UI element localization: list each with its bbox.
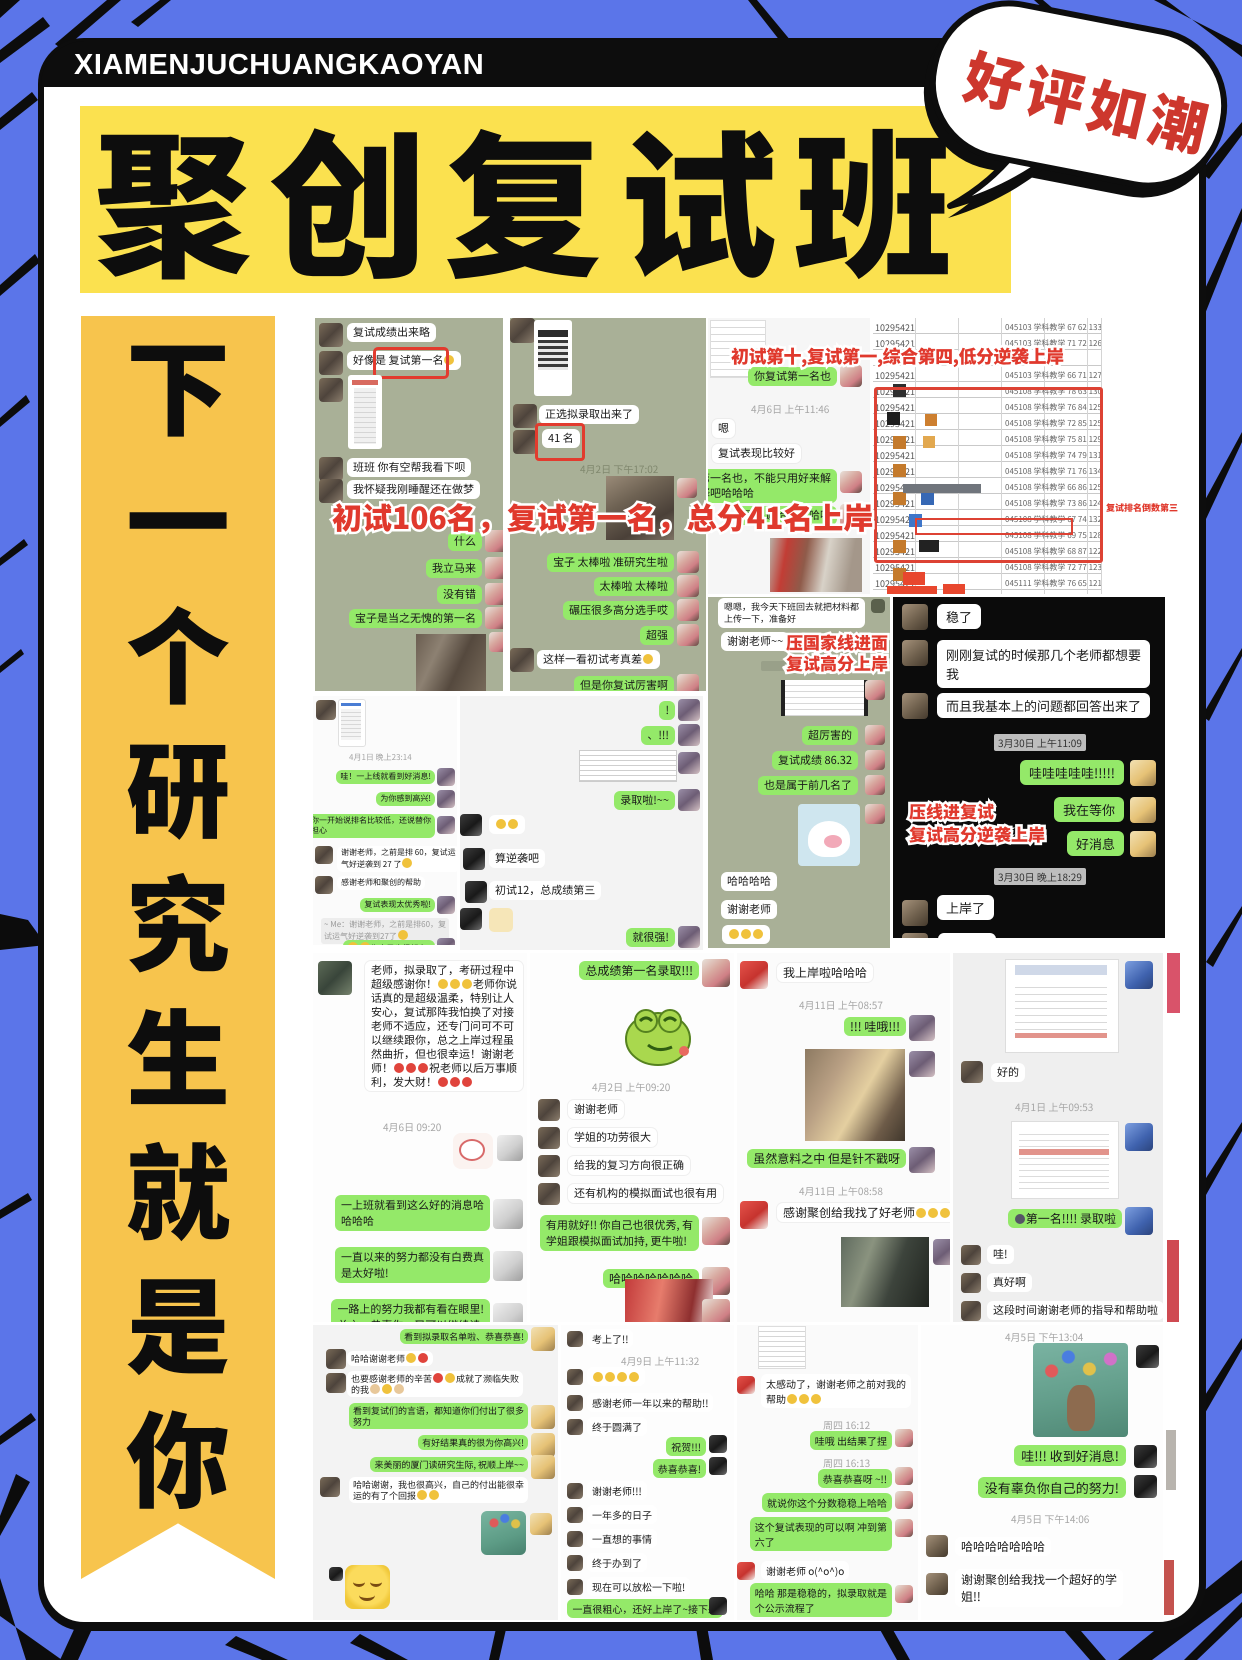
svg-text:初试106名，复试第一名，总分41名上岸: 初试106名，复试第一名，总分41名上岸 [332, 494, 873, 538]
svg-text:复试高分逆袭上岸: 复试高分逆袭上岸 [909, 821, 1045, 846]
svg-text:压线进复试: 压线进复试 [909, 798, 994, 823]
svg-text:复试排名倒数第三: 复试排名倒数第三 [1106, 501, 1178, 514]
svg-text:复试高分上岸: 复试高分上岸 [786, 650, 888, 675]
svg-text:初试第十,复试第一,综合第四,低分逆袭上岸: 初试第十,复试第一,综合第四,低分逆袭上岸 [731, 343, 1064, 369]
